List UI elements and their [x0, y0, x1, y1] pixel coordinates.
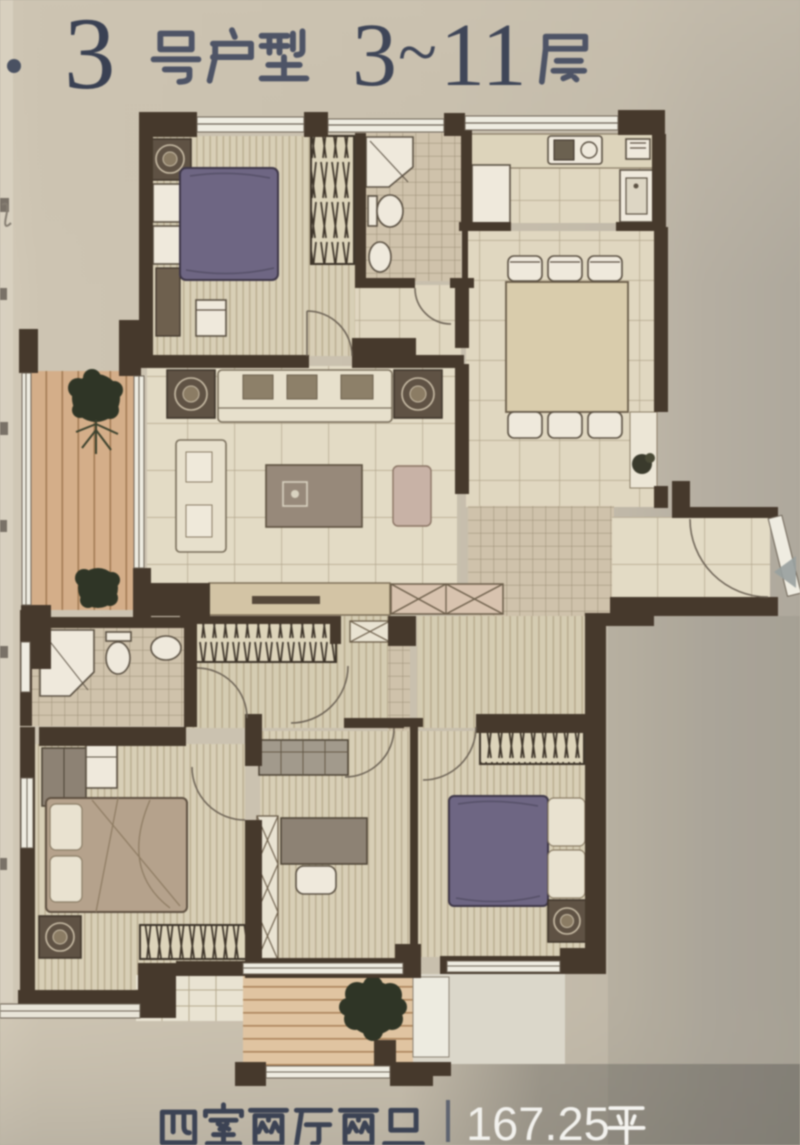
- svg-text:~: ~: [398, 12, 437, 92]
- svg-text:167.25: 167.25: [466, 1097, 610, 1145]
- svg-text:3: 3: [352, 6, 397, 105]
- svg-text:11: 11: [440, 6, 527, 105]
- svg-text:3: 3: [64, 0, 116, 111]
